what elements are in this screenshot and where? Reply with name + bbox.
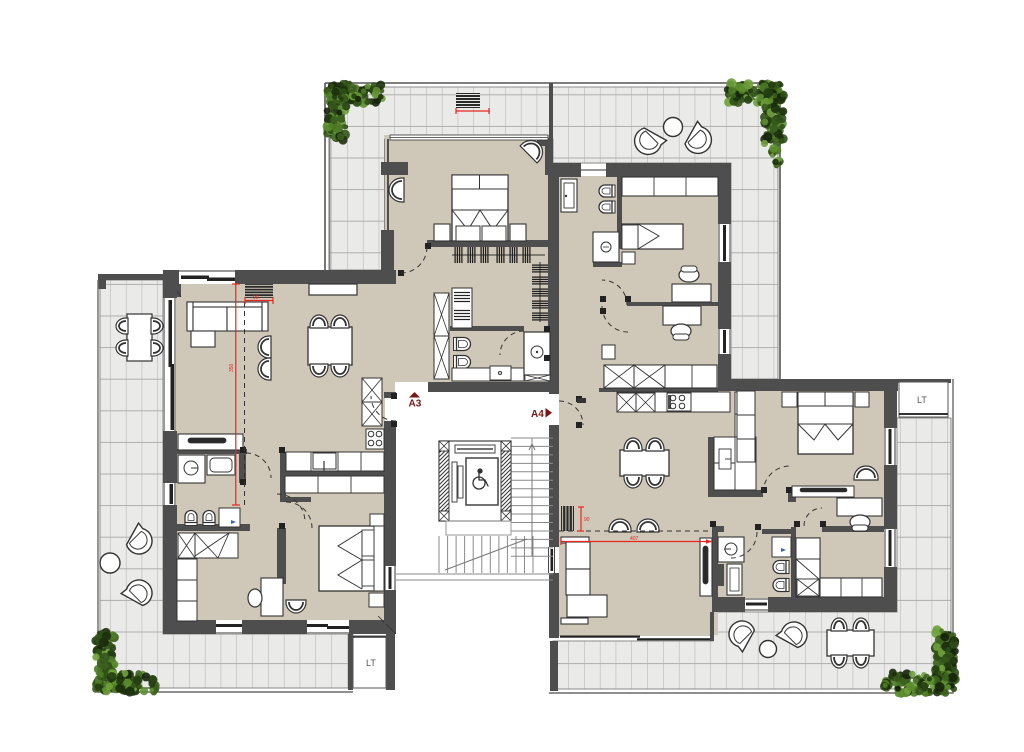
svg-text:LT: LT: [917, 395, 927, 405]
svg-text:90: 90: [253, 295, 259, 301]
svg-text:407: 407: [630, 536, 639, 542]
svg-text:A3: A3: [409, 399, 422, 410]
svg-text:90: 90: [584, 517, 590, 523]
svg-text:A4: A4: [531, 409, 544, 420]
svg-text:LT: LT: [366, 658, 376, 668]
svg-text:350: 350: [229, 363, 235, 372]
